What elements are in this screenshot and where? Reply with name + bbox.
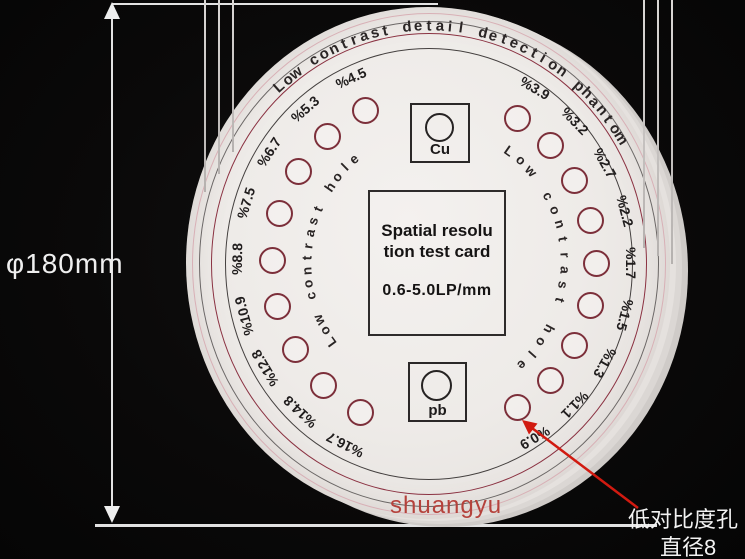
leader-line-left-2 bbox=[218, 0, 220, 174]
title-arc-char: d bbox=[401, 18, 412, 36]
left-arc-label-char: n bbox=[299, 266, 314, 275]
title-arc-char: e bbox=[413, 18, 422, 35]
arrow-down-icon bbox=[104, 506, 120, 523]
card-line-2: tion test card bbox=[370, 241, 504, 262]
leader-line-right-2 bbox=[657, 0, 659, 256]
pb-marker-label: pb bbox=[410, 402, 465, 419]
leader-line-left-3 bbox=[232, 0, 234, 152]
contrast-hole bbox=[264, 293, 291, 320]
cu-marker-label: Cu bbox=[412, 141, 468, 158]
right-arc-label-char: a bbox=[557, 266, 572, 274]
card-line-3: 0.6-5.0LP/mm bbox=[370, 282, 504, 300]
arrow-up-icon bbox=[104, 2, 120, 19]
cu-marker-box: Cu bbox=[410, 103, 470, 163]
title-arc-char: t bbox=[426, 17, 431, 34]
hole-label: %8.8 bbox=[229, 243, 246, 275]
cu-marker-hole bbox=[425, 113, 454, 142]
contrast-hole bbox=[282, 336, 309, 363]
contrast-hole bbox=[285, 158, 312, 185]
contrast-hole bbox=[504, 394, 531, 421]
watermark-text: shuangyu bbox=[390, 492, 502, 520]
contrast-hole bbox=[537, 132, 564, 159]
contrast-hole bbox=[577, 207, 604, 234]
leader-line-right-3 bbox=[671, 0, 673, 264]
card-line-1: Spatial resolu bbox=[370, 220, 504, 241]
contrast-hole bbox=[314, 123, 341, 150]
hole-label: %1.7 bbox=[623, 247, 639, 279]
left-arc-label-char: t bbox=[300, 256, 315, 261]
pb-marker-box: pb bbox=[408, 362, 467, 422]
contrast-hole bbox=[259, 247, 286, 274]
leader-line-right-1 bbox=[643, 0, 645, 248]
callout-line-2: 直径8 bbox=[660, 530, 716, 559]
contrast-hole bbox=[347, 399, 374, 426]
contrast-hole bbox=[266, 200, 293, 227]
right-arc-label-char: r bbox=[557, 252, 572, 258]
contrast-hole bbox=[537, 367, 564, 394]
pb-marker-hole bbox=[421, 370, 452, 401]
leader-line-left-1 bbox=[204, 0, 206, 192]
diameter-label: φ180mm bbox=[6, 248, 124, 280]
annotated-product-photo: φ180mm Cu pb Spatial resolu tion test ca… bbox=[0, 0, 745, 559]
spatial-resolution-card: Spatial resolu tion test card 0.6-5.0LP/… bbox=[368, 190, 506, 336]
contrast-hole bbox=[583, 250, 610, 277]
left-arc-label-char: o bbox=[300, 278, 316, 288]
title-arc-char: a bbox=[435, 18, 444, 35]
dimension-extension-line-bottom bbox=[95, 524, 657, 527]
dimension-extension-line-top bbox=[112, 3, 438, 5]
